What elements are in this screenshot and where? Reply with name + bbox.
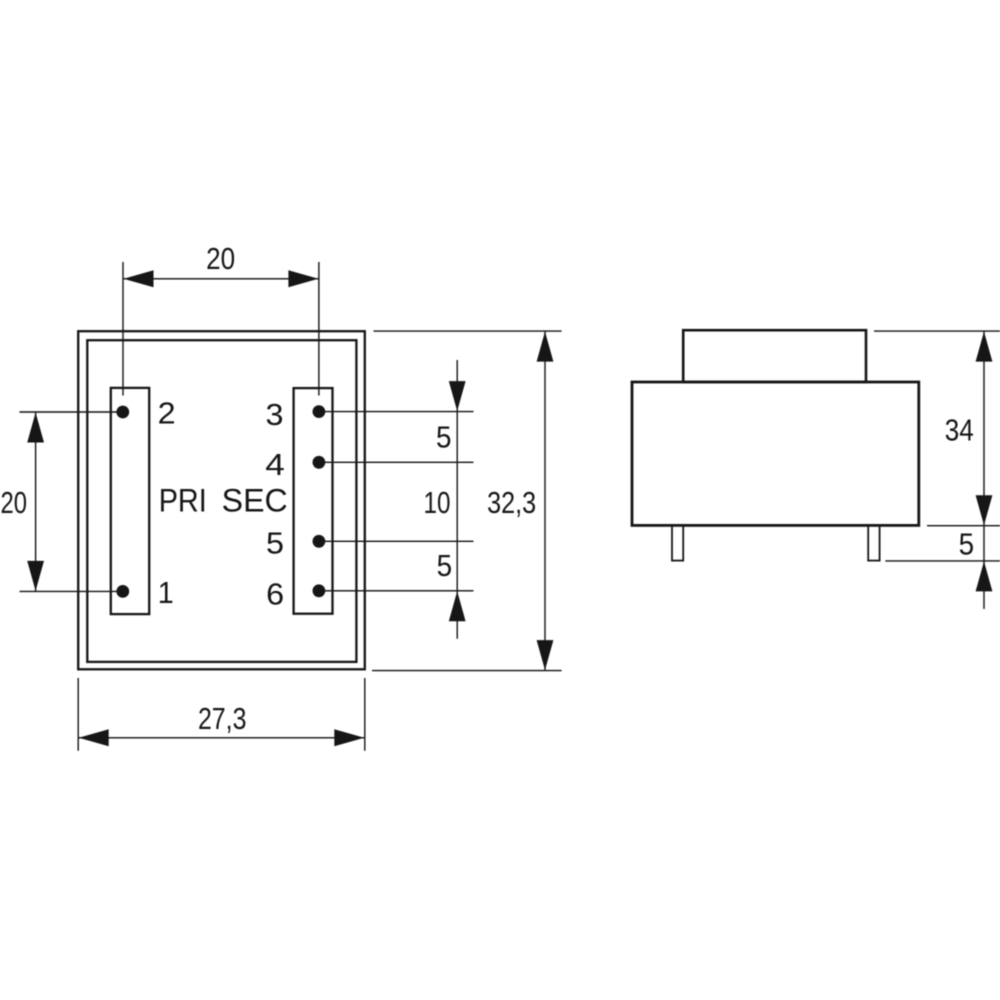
svg-text:5: 5 <box>437 548 453 583</box>
svg-text:27,3: 27,3 <box>198 701 247 736</box>
svg-text:20: 20 <box>1 485 28 520</box>
svg-text:5: 5 <box>436 420 452 455</box>
svg-text:4: 4 <box>265 447 285 482</box>
svg-text:5: 5 <box>959 527 975 562</box>
svg-text:20: 20 <box>206 241 235 276</box>
svg-text:34: 34 <box>945 413 974 448</box>
svg-text:3: 3 <box>266 397 284 432</box>
svg-text:6: 6 <box>266 577 284 612</box>
svg-text:32,3: 32,3 <box>487 485 536 520</box>
svg-text:10: 10 <box>424 485 451 520</box>
svg-text:PRI: PRI <box>159 483 207 519</box>
svg-text:5: 5 <box>266 526 284 561</box>
svg-text:2: 2 <box>158 396 176 431</box>
svg-text:1: 1 <box>158 575 174 610</box>
svg-text:SEC: SEC <box>222 483 288 519</box>
